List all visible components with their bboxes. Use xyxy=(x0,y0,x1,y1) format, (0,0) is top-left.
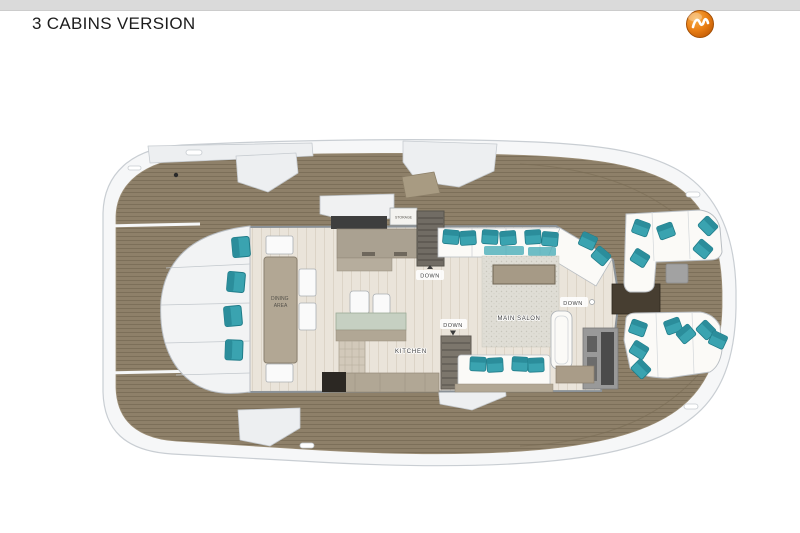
cleat xyxy=(300,443,314,448)
coffee-table xyxy=(493,265,555,284)
kitchen-label: KITCHEN xyxy=(395,349,427,355)
cleat xyxy=(186,150,202,155)
floor-plan: DINING AREA STORAGE DOWN xyxy=(0,0,800,533)
appliance-block xyxy=(339,341,365,374)
main-salon-label: MAIN SALON xyxy=(497,316,540,322)
dining-table xyxy=(264,257,297,363)
aft-cabinet xyxy=(556,366,594,383)
cleat xyxy=(684,404,698,409)
cleat xyxy=(128,166,141,170)
down-label-aft: DOWN xyxy=(563,301,582,307)
aft-table xyxy=(666,264,688,283)
chaise xyxy=(551,311,572,369)
brand-logo xyxy=(687,11,714,38)
page: 3 CABINS VERSION xyxy=(0,0,800,533)
counter-tag xyxy=(362,252,375,256)
deck-fitting xyxy=(174,173,178,177)
counter-tag xyxy=(394,252,407,256)
dark-console xyxy=(331,216,387,229)
helm-seat xyxy=(402,172,440,198)
down-label-galley: DOWN xyxy=(443,323,462,329)
stair-opening xyxy=(322,372,346,392)
dining-area-label: DINING AREA xyxy=(271,296,290,309)
storage-label: STORAGE xyxy=(395,216,413,220)
island-counter xyxy=(336,313,406,330)
cleat xyxy=(686,192,700,197)
down-label-forward: DOWN xyxy=(420,274,439,280)
